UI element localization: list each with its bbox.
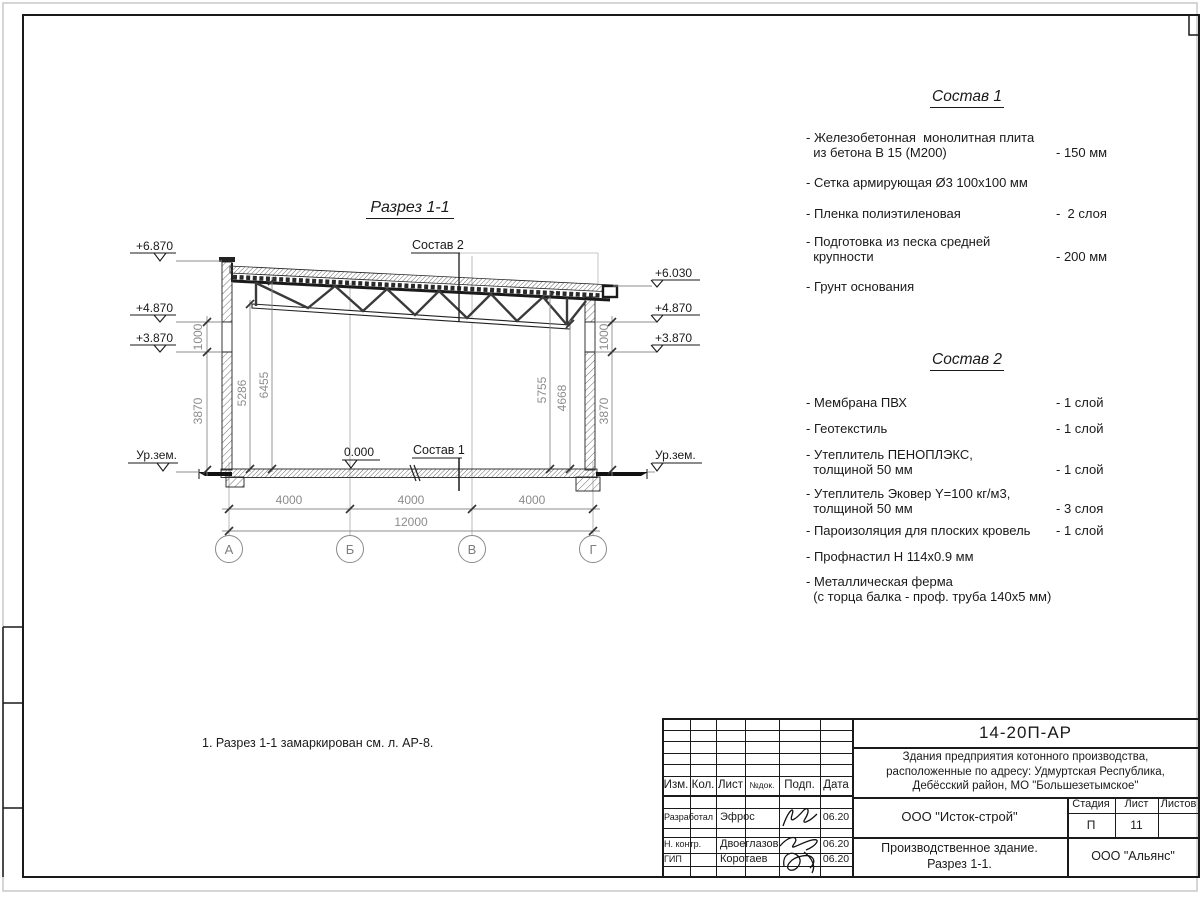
sostav1-heading: Состав 1 (912, 88, 1022, 106)
signature (780, 804, 820, 832)
col-izm: Изм. (662, 776, 690, 795)
list-item-value: - 2 слоя (1056, 206, 1107, 221)
stage-label: Стадия (1067, 797, 1115, 813)
sostav2-ref-label: Состав 2 (412, 238, 464, 252)
elev-left-low: +3.870 (136, 331, 173, 345)
list-item: - Пароизоляция для плоских кровель (806, 523, 1030, 538)
list-item-value: - 1 слой (1056, 462, 1104, 477)
dim-h-4668: 4668 (555, 384, 569, 411)
dim-left-window: 1000 (191, 323, 205, 350)
list-item: - Грунт основания (806, 279, 914, 294)
list-item-value: - 1 слой (1056, 523, 1104, 538)
list-item: - Металлическая ферма (с торца балка - п… (806, 574, 1051, 604)
ground-label-right: Ур.зем. (655, 448, 696, 462)
drawing-note: 1. Разрез 1-1 замаркирован см. л. АР-8. (202, 736, 433, 750)
dimension-texts: 4000 4000 4000 12000 1000 3870 1000 3870… (191, 323, 611, 529)
list-item: - Подготовка из песка средней крупности (806, 234, 990, 264)
list-item: - Утеплитель ПЕНОПЛЭКС, толщиной 50 мм (806, 447, 973, 477)
list-item: - Геотекстиль (806, 421, 887, 436)
elev-right-top: +6.030 (655, 266, 692, 280)
row-role: ГИП (664, 853, 716, 866)
dim-right-window: 1000 (597, 323, 611, 350)
view-title: Разрез 1-1 (355, 199, 465, 217)
axis-b: Б (346, 542, 355, 557)
contractor: ООО "Альянс" (1067, 837, 1199, 877)
view-title-text: Разрез 1-1 (366, 199, 453, 219)
list-item: - Мембрана ПВХ (806, 395, 907, 410)
col-list: Лист (716, 776, 745, 795)
list-item: - Пленка полиэтиленовая (806, 206, 961, 221)
elev-right-low: +3.870 (655, 331, 692, 345)
list-item: - Профнастил Н 114х0.9 мм (806, 549, 974, 564)
dim-h-5286: 5286 (235, 379, 249, 406)
col-podp: Подп. (779, 776, 820, 795)
list-item-value: - 3 слоя (1056, 501, 1103, 516)
col-kol: Кол. (690, 776, 716, 795)
roof (230, 266, 617, 300)
axis-g: Г (589, 542, 596, 557)
row-name: Эфрос (720, 808, 779, 828)
dim-left-wall: 3870 (191, 397, 205, 424)
sostav2-heading: Состав 2 (912, 351, 1022, 369)
dim-h-6455: 6455 (257, 371, 271, 398)
dim-bay1: 4000 (276, 493, 303, 507)
axis-v: В (468, 542, 477, 557)
sheet-value: 11 (1115, 813, 1158, 837)
row-date: 06.20 (820, 837, 852, 853)
dim-bay2: 4000 (398, 493, 425, 507)
list-item-value: - 1 слой (1056, 395, 1104, 410)
elev-left-mid: +4.870 (136, 301, 173, 315)
list-item: - Железобетонная монолитная плита из бет… (806, 130, 1034, 160)
sheets-value (1158, 813, 1199, 837)
stage-value: П (1067, 813, 1115, 837)
axis-a: А (225, 542, 234, 557)
zero-level: 0.000 (344, 445, 374, 459)
dim-bay3: 4000 (519, 493, 546, 507)
floor-slab (221, 465, 597, 481)
row-role: Разработал (664, 808, 716, 828)
sostav1-ref-label: Состав 1 (413, 443, 465, 457)
dim-right-wall: 3870 (597, 397, 611, 424)
row-name: Коротаев (720, 853, 779, 866)
left-stamp-cells (3, 627, 23, 877)
list-item-value: - 150 мм (1056, 145, 1107, 160)
row-date: 06.20 (820, 808, 852, 828)
col-data: Дата (820, 776, 852, 795)
title-block: Изм. Кол. Лист №док. Подп. Дата Разработ… (662, 718, 1199, 877)
row-date: 06.20 (820, 853, 852, 866)
list-item: - Утеплитель Эковер Y=100 кг/м3, толщино… (806, 486, 1010, 516)
signature (776, 832, 824, 876)
left-wall (219, 257, 235, 470)
project-description: Здания предприятия котонного производств… (852, 747, 1199, 797)
list-item-value: - 1 слой (1056, 421, 1104, 436)
ground-label-left: Ур.зем. (136, 448, 177, 462)
drawing-sheet: А Б В Г 4000 4000 4000 12000 1000 3870 1… (0, 0, 1200, 900)
list-item-value: - 200 мм (1056, 249, 1107, 264)
elev-right-mid: +4.870 (655, 301, 692, 315)
elev-left-top: +6.870 (136, 239, 173, 253)
sheet-label: Лист (1115, 797, 1158, 813)
row-role: Н. контр. (664, 837, 716, 853)
design-organization: ООО "Исток-строй" (852, 797, 1067, 837)
dim-h-5755: 5755 (535, 376, 549, 403)
object-title: Производственное здание. Разрез 1-1. (852, 837, 1067, 877)
foundations (226, 477, 600, 491)
dim-total: 12000 (394, 515, 428, 529)
col-ndok: №док. (745, 776, 779, 795)
row-name: Двоеглазов (720, 837, 779, 853)
sheets-label: Листов (1158, 797, 1199, 813)
right-wall (585, 297, 595, 470)
end-beam (603, 286, 617, 297)
grid-bubbles: А Б В Г (216, 536, 607, 563)
doc-number: 14-20П-АР (852, 718, 1199, 747)
list-item: - Сетка армирующая Ø3 100х100 мм (806, 175, 1028, 190)
